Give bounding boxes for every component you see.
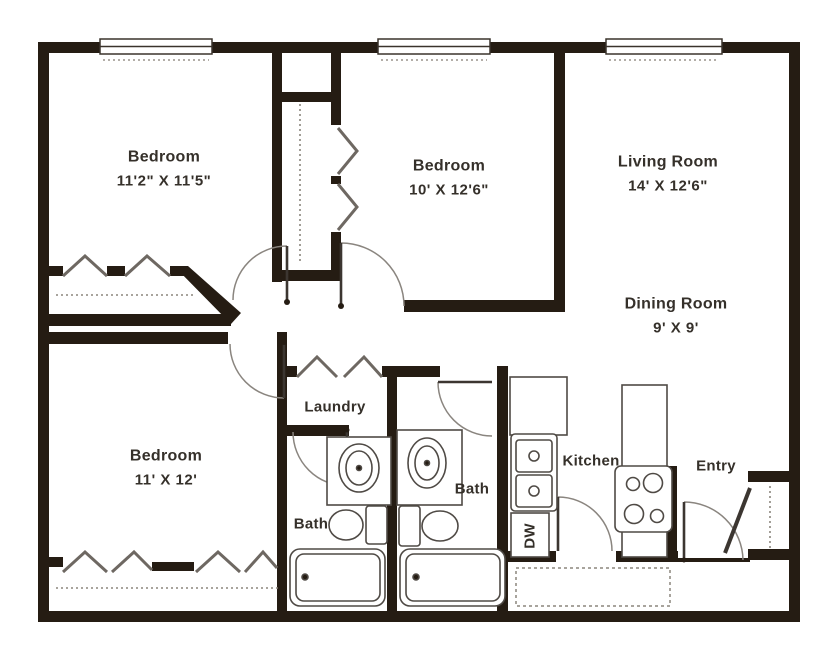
room-label-bedroom-2: Bedroom 10' X 12'6"	[409, 159, 489, 198]
stove-icon	[615, 466, 672, 532]
label-kitchen: Kitchen	[562, 453, 619, 470]
bathtub-icon	[400, 549, 505, 606]
floor-plan: Bedroom 11'2" X 11'5" Bedroom 10' X 12'6…	[0, 0, 837, 661]
vanity-sink-icon	[327, 437, 391, 505]
room-label-bedroom-1: Bedroom 11'2" X 11'5"	[117, 150, 212, 189]
room-name: Bedroom	[117, 150, 212, 166]
room-dimensions: 10' X 12'6"	[409, 183, 489, 198]
room-label-living-room: Living Room 14' X 12'6"	[618, 155, 718, 194]
bathtub-icon	[290, 549, 385, 606]
toilet-icon	[329, 506, 387, 544]
room-dimensions: 9' X 9'	[625, 321, 728, 336]
toilet-icon	[399, 506, 458, 546]
label-entry: Entry	[696, 458, 736, 475]
patio-dashed-area	[516, 568, 670, 606]
room-label-bedroom-3: Bedroom 11' X 12'	[130, 449, 202, 488]
room-label-dining-room: Dining Room 9' X 9'	[625, 297, 728, 336]
window-icon	[100, 39, 722, 54]
label-laundry: Laundry	[304, 399, 365, 416]
label-bath-1: Bath	[294, 516, 329, 533]
kitchen-cabinet	[510, 377, 567, 435]
vanity-sink-icon	[397, 430, 462, 505]
room-dimensions: 14' X 12'6"	[618, 179, 718, 194]
room-name: Bedroom	[409, 159, 489, 175]
label-bath-2: Bath	[455, 481, 490, 498]
room-dimensions: 11' X 12'	[130, 473, 202, 488]
label-dishwasher: DW	[522, 523, 539, 549]
room-name: Living Room	[618, 155, 718, 171]
room-dimensions: 11'2" X 11'5"	[117, 174, 212, 189]
room-name: Bedroom	[130, 449, 202, 465]
kitchen-sink-icon	[511, 434, 557, 511]
room-name: Dining Room	[625, 297, 728, 313]
